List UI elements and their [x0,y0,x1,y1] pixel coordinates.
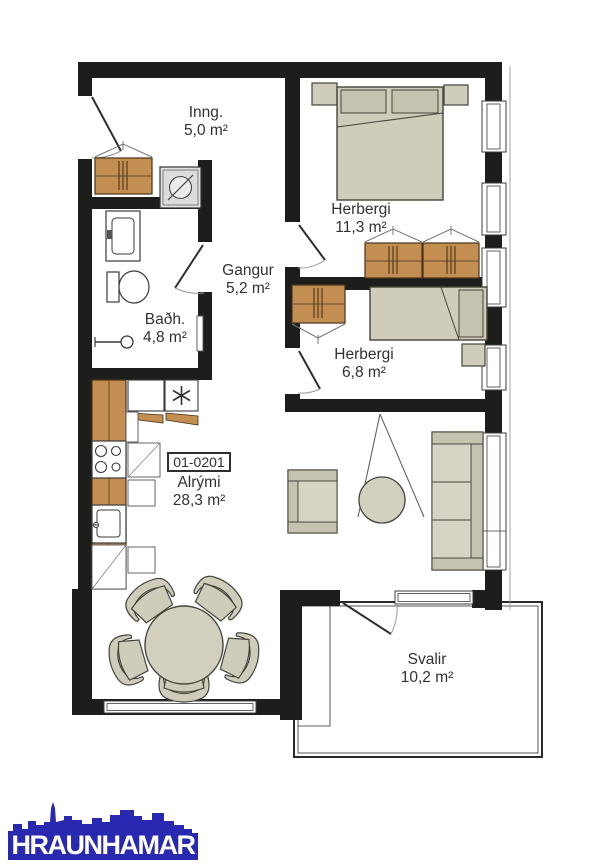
room-area: 28,3 m² [159,492,239,510]
room-name: Alrými [159,474,239,492]
stove-icon [92,441,126,478]
toilet-icon [107,271,149,303]
nightstand [444,85,468,105]
window [482,433,506,570]
window [482,183,506,235]
room-name: Herbergi [318,201,404,219]
dining-table [145,606,223,684]
bedroom1-furniture [312,83,479,278]
room-name: Gangur [205,262,291,280]
balcony-window [395,591,473,604]
room-area: 5,2 m² [205,280,291,298]
cabinet-door-fronts [131,413,198,425]
washing-machine-icon [160,167,201,208]
sofa [432,432,483,570]
room-name: Baðh. [127,311,203,329]
entrance-door [92,97,121,158]
unit-number: 01-0201 [173,454,224,470]
room-label-svalir: Svalir 10,2 m² [384,651,470,686]
kitchen-sink-icon [92,505,126,543]
room-name: Svalir [384,651,470,669]
freezer-icon [165,380,198,411]
unit-number-box: 01-0201 [167,452,231,472]
wardrobe [423,226,479,278]
coffee-table [359,477,405,523]
room-name: Inng. [168,104,244,122]
hall-bedroom-wall [285,78,300,222]
nightstand [462,344,485,366]
room-label-gangur: Gangur 5,2 m² [205,262,291,297]
window [482,345,506,390]
entrance-wardrobe [95,141,152,194]
logo-text: HRAUNHAMAR [8,831,198,859]
bathroom-door [175,245,204,293]
room-area: 5,0 m² [168,122,244,140]
room-area: 6,8 m² [321,364,407,382]
room-label-alrymi: Alrými 28,3 m² [159,474,239,509]
room-area: 4,8 m² [127,329,203,347]
agency-logo: HRAUNHAMAR [8,798,198,860]
fridge [128,380,164,411]
nightstand [312,83,337,105]
room-label-herbergi2: Herbergi 6,8 m² [321,346,407,381]
room-area: 10,2 m² [384,669,470,687]
bedroom2-door [298,351,320,393]
armchair [288,470,337,533]
room-name: Herbergi [321,346,407,364]
room-label-inng: Inng. 5,0 m² [168,104,244,139]
window [104,701,256,713]
room-area: 11,3 m² [318,219,404,237]
floor-plan-page: Inng. 5,0 m² Herbergi 11,3 m² Gangur 5,2… [0,0,613,867]
bathroom-sink-icon [106,211,140,261]
double-bed [337,87,443,200]
dining-chair [218,629,264,686]
room-label-badh: Baðh. 4,8 m² [127,311,203,346]
window [482,101,506,152]
dining-set [104,569,264,702]
dining-chair [104,631,150,688]
top-wall [78,62,502,78]
floor-plan-drawing [0,0,613,867]
single-bed [370,287,487,340]
room-label-herbergi1: Herbergi 11,3 m² [318,201,404,236]
